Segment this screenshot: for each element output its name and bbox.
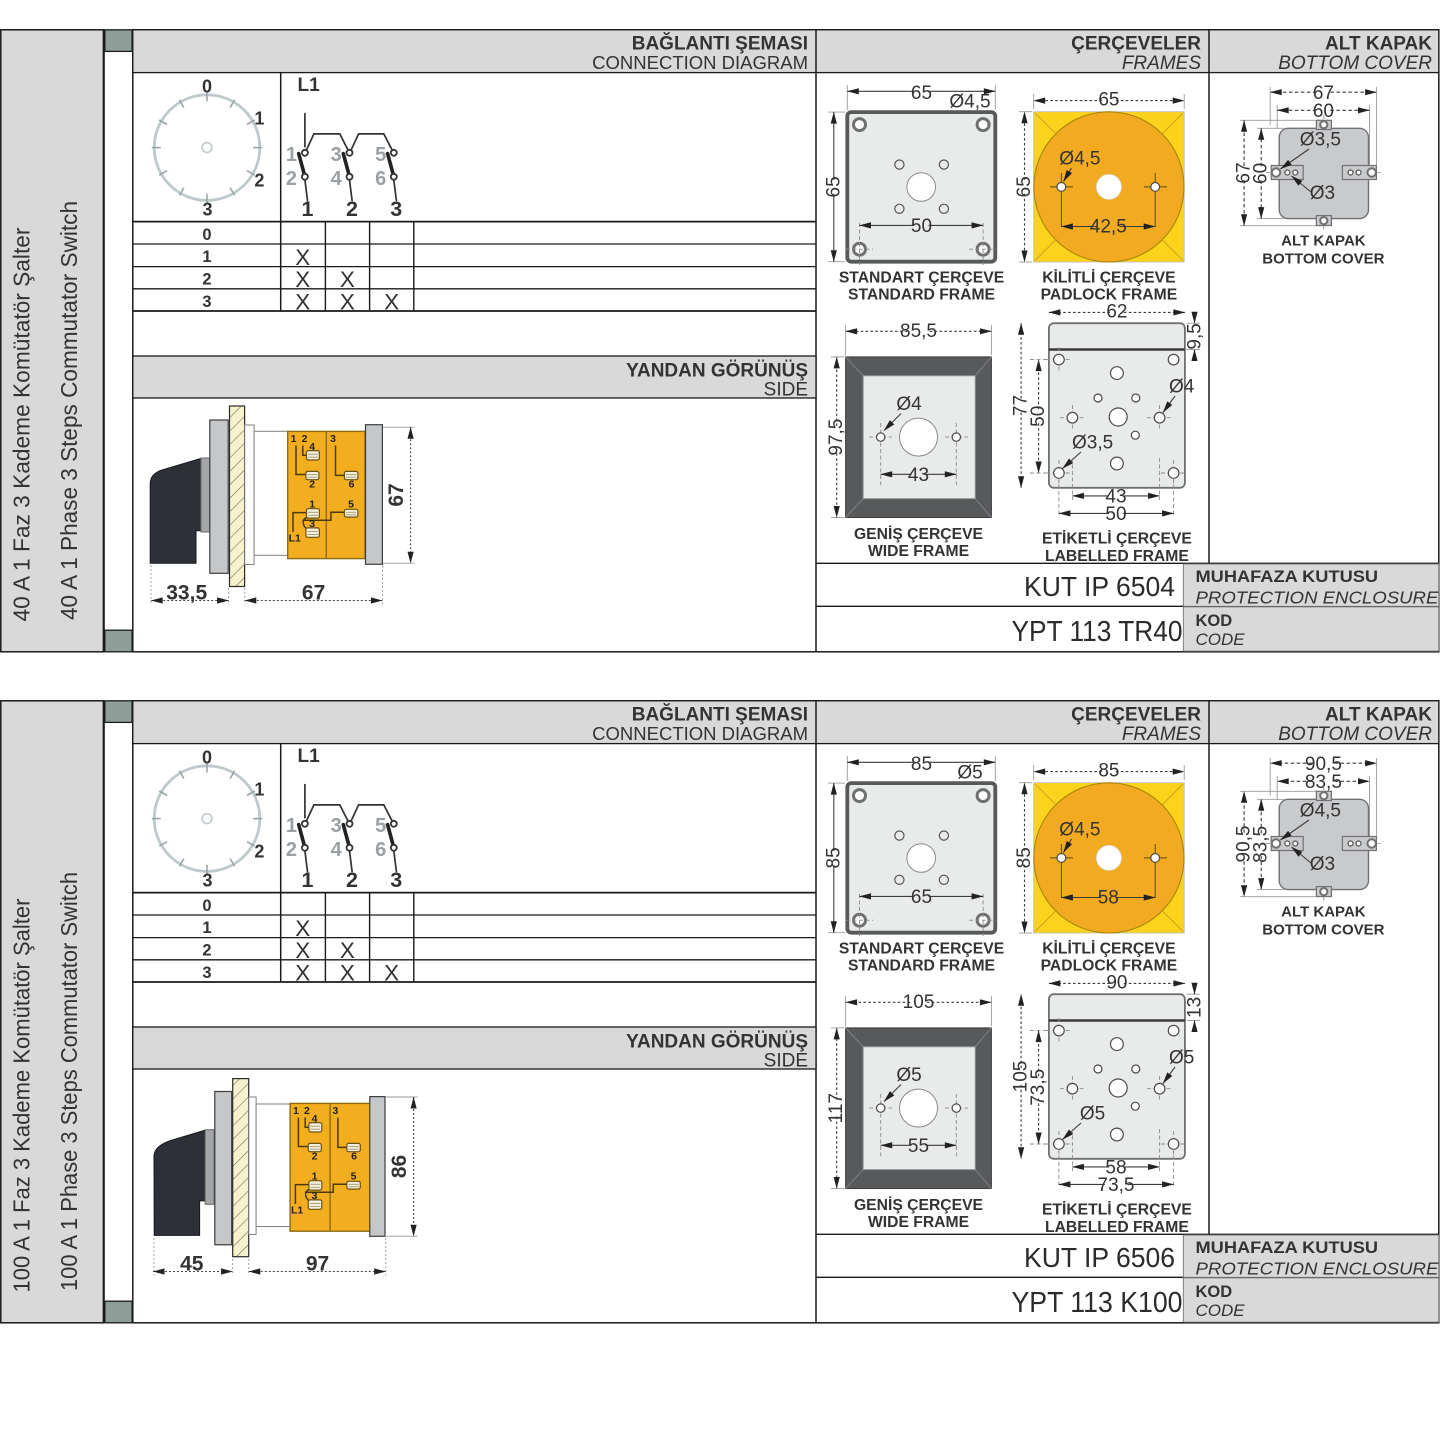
svg-text:1: 1: [312, 1171, 318, 1183]
svg-text:WIDE FRAME: WIDE FRAME: [868, 1214, 969, 1231]
svg-text:40 A 1 Faz 3 Kademe Komütatör: 40 A 1 Faz 3 Kademe Komütatör Şalter: [9, 227, 35, 621]
svg-text:BOTTOM COVER: BOTTOM COVER: [1262, 251, 1384, 268]
svg-text:3: 3: [331, 815, 342, 837]
svg-text:L1: L1: [298, 75, 321, 96]
svg-text:PROTECTION ENCLOSURE: PROTECTION ENCLOSURE: [1196, 588, 1439, 608]
svg-text:5: 5: [348, 499, 354, 511]
svg-text:FRAMES: FRAMES: [1122, 53, 1202, 74]
svg-text:86: 86: [388, 1155, 411, 1178]
svg-text:5: 5: [351, 1171, 357, 1183]
svg-text:2: 2: [346, 868, 358, 892]
svg-text:2: 2: [302, 433, 308, 445]
svg-text:X: X: [295, 245, 310, 270]
svg-text:Ø3,5: Ø3,5: [1072, 433, 1113, 454]
svg-text:Ø3: Ø3: [1310, 854, 1335, 875]
svg-text:97,5: 97,5: [826, 419, 847, 456]
svg-text:85: 85: [1098, 761, 1119, 782]
svg-text:Ø5: Ø5: [1080, 1104, 1105, 1125]
svg-text:1: 1: [286, 144, 297, 166]
svg-text:KUT IP 6506: KUT IP 6506: [1024, 1242, 1175, 1273]
svg-text:3: 3: [390, 197, 402, 221]
svg-text:ETİKETLİ ÇERÇEVE: ETİKETLİ ÇERÇEVE: [1042, 1201, 1192, 1219]
svg-text:YANDAN GÖRÜNÜŞ: YANDAN GÖRÜNÜŞ: [626, 1032, 808, 1053]
svg-text:2: 2: [202, 942, 211, 960]
svg-text:ETİKETLİ ÇERÇEVE: ETİKETLİ ÇERÇEVE: [1042, 530, 1192, 548]
svg-text:3: 3: [312, 1190, 318, 1202]
svg-text:STANDARD FRAME: STANDARD FRAME: [848, 958, 995, 975]
svg-text:3: 3: [330, 433, 336, 445]
svg-text:ALT KAPAK: ALT KAPAK: [1325, 34, 1432, 55]
svg-text:Ø4,5: Ø4,5: [1059, 820, 1100, 841]
svg-text:2: 2: [312, 1150, 318, 1162]
svg-text:85: 85: [911, 754, 932, 775]
svg-text:MUHAFAZA KUTUSU: MUHAFAZA KUTUSU: [1196, 1239, 1379, 1257]
svg-text:L1: L1: [291, 1205, 303, 1217]
svg-text:85,5: 85,5: [900, 321, 937, 342]
svg-text:65: 65: [823, 176, 844, 197]
svg-text:Ø5: Ø5: [1169, 1048, 1194, 1069]
svg-text:Ø4: Ø4: [1169, 377, 1195, 398]
svg-text:1: 1: [302, 868, 314, 892]
svg-text:1: 1: [202, 248, 211, 266]
svg-text:4: 4: [331, 168, 343, 190]
svg-text:2: 2: [202, 271, 211, 289]
svg-text:3: 3: [331, 144, 342, 166]
svg-text:85: 85: [1014, 847, 1035, 868]
svg-text:LABELLED FRAME: LABELLED FRAME: [1045, 1219, 1189, 1236]
svg-text:0: 0: [202, 226, 211, 244]
svg-text:Ø4,5: Ø4,5: [1300, 801, 1341, 822]
svg-text:33,5: 33,5: [166, 581, 207, 604]
svg-text:LABELLED FRAME: LABELLED FRAME: [1045, 548, 1189, 565]
svg-text:3: 3: [202, 964, 211, 982]
svg-text:85: 85: [823, 847, 844, 868]
svg-text:50: 50: [1028, 406, 1049, 427]
svg-text:9,5: 9,5: [1185, 323, 1206, 349]
svg-text:Ø4,5: Ø4,5: [949, 92, 990, 113]
svg-text:13: 13: [1185, 997, 1206, 1018]
svg-text:ALT KAPAK: ALT KAPAK: [1325, 705, 1432, 726]
svg-text:67: 67: [385, 483, 408, 506]
svg-text:L1: L1: [298, 746, 321, 767]
svg-text:KİLİTLİ ÇERÇEVE: KİLİTLİ ÇERÇEVE: [1042, 269, 1175, 287]
svg-text:65: 65: [911, 83, 932, 104]
svg-text:YANDAN GÖRÜNÜŞ: YANDAN GÖRÜNÜŞ: [626, 361, 808, 382]
svg-text:100 A 1 Faz 3 Kademe Komütatör: 100 A 1 Faz 3 Kademe Komütatör Şalter: [9, 898, 35, 1292]
svg-text:ALT KAPAK: ALT KAPAK: [1281, 904, 1366, 921]
svg-text:Ø4: Ø4: [896, 394, 922, 415]
svg-text:STANDARD FRAME: STANDARD FRAME: [848, 287, 995, 304]
svg-text:ÇERÇEVELER: ÇERÇEVELER: [1071, 34, 1201, 55]
svg-text:0: 0: [202, 747, 212, 767]
svg-text:40 A 1 Phase 3 Steps Commutato: 40 A 1 Phase 3 Steps Commutator Switch: [56, 201, 82, 620]
svg-text:5: 5: [375, 144, 386, 166]
svg-text:Ø3: Ø3: [1310, 183, 1335, 204]
svg-text:0: 0: [202, 897, 211, 915]
svg-text:YPT 113 K100: YPT 113 K100: [1012, 1287, 1183, 1319]
svg-text:STANDART ÇERÇEVE: STANDART ÇERÇEVE: [839, 270, 1004, 287]
svg-text:60: 60: [1251, 163, 1272, 184]
svg-text:X: X: [384, 960, 399, 985]
svg-text:2: 2: [286, 839, 297, 861]
svg-text:Ø3,5: Ø3,5: [1300, 130, 1341, 151]
svg-text:KİLİTLİ ÇERÇEVE: KİLİTLİ ÇERÇEVE: [1042, 940, 1175, 958]
svg-text:CODE: CODE: [1196, 630, 1246, 649]
svg-text:2: 2: [346, 197, 358, 221]
svg-text:65: 65: [911, 887, 932, 908]
svg-text:42,5: 42,5: [1090, 217, 1127, 238]
svg-text:55: 55: [908, 1136, 929, 1157]
svg-text:6: 6: [349, 478, 355, 490]
svg-text:Ø4,5: Ø4,5: [1059, 149, 1100, 170]
svg-text:CODE: CODE: [1196, 1301, 1246, 1320]
svg-text:6: 6: [351, 1150, 357, 1162]
svg-text:BOTTOM COVER: BOTTOM COVER: [1262, 922, 1384, 939]
svg-text:3: 3: [332, 1105, 338, 1117]
svg-text:YPT 113 TR40: YPT 113 TR40: [1012, 616, 1183, 648]
svg-text:GENİŞ ÇERÇEVE: GENİŞ ÇERÇEVE: [854, 525, 983, 543]
svg-text:2: 2: [254, 842, 264, 862]
svg-text:X: X: [384, 289, 399, 314]
svg-text:3: 3: [202, 199, 212, 219]
svg-text:45: 45: [180, 1252, 204, 1275]
svg-text:100 A 1 Phase 3 Steps Commutat: 100 A 1 Phase 3 Steps Commutator Switch: [56, 872, 82, 1291]
svg-text:2: 2: [304, 1105, 310, 1117]
svg-text:SIDE: SIDE: [764, 380, 808, 401]
svg-text:CONNECTION DIAGRAM: CONNECTION DIAGRAM: [592, 723, 808, 744]
svg-text:3: 3: [390, 868, 402, 892]
svg-text:ALT KAPAK: ALT KAPAK: [1281, 233, 1366, 250]
svg-text:L1: L1: [289, 533, 301, 545]
svg-text:67: 67: [302, 581, 325, 604]
svg-text:4: 4: [331, 839, 343, 861]
svg-text:1: 1: [202, 919, 211, 937]
svg-text:BOTTOM COVER: BOTTOM COVER: [1278, 724, 1432, 745]
svg-text:2: 2: [286, 168, 297, 190]
svg-text:KUT IP 6504: KUT IP 6504: [1024, 571, 1175, 602]
svg-text:3: 3: [309, 518, 315, 530]
svg-text:FRAMES: FRAMES: [1122, 724, 1202, 745]
svg-text:Ø5: Ø5: [957, 763, 982, 784]
svg-text:X: X: [295, 960, 310, 985]
svg-text:STANDART ÇERÇEVE: STANDART ÇERÇEVE: [839, 941, 1004, 958]
svg-text:90: 90: [1106, 973, 1127, 994]
svg-text:4: 4: [309, 441, 315, 453]
svg-text:KOD: KOD: [1196, 1283, 1233, 1301]
svg-text:50: 50: [911, 216, 932, 237]
svg-text:117: 117: [826, 1093, 847, 1123]
svg-text:1: 1: [309, 499, 315, 511]
svg-text:GENİŞ ÇERÇEVE: GENİŞ ÇERÇEVE: [854, 1196, 983, 1214]
svg-text:KOD: KOD: [1196, 612, 1233, 630]
svg-text:3: 3: [202, 870, 212, 890]
svg-text:4: 4: [312, 1113, 318, 1125]
svg-text:58: 58: [1098, 888, 1119, 909]
svg-text:0: 0: [202, 76, 212, 96]
svg-text:BOTTOM COVER: BOTTOM COVER: [1278, 53, 1432, 74]
svg-text:1: 1: [254, 779, 264, 799]
svg-text:CONNECTION DIAGRAM: CONNECTION DIAGRAM: [592, 52, 808, 73]
svg-text:105: 105: [903, 992, 935, 1013]
svg-text:PROTECTION ENCLOSURE: PROTECTION ENCLOSURE: [1196, 1259, 1439, 1279]
svg-text:3: 3: [202, 293, 211, 311]
svg-text:65: 65: [1098, 90, 1119, 111]
svg-text:50: 50: [1105, 504, 1126, 525]
svg-text:6: 6: [375, 168, 386, 190]
svg-text:62: 62: [1106, 302, 1127, 323]
svg-text:X: X: [340, 960, 355, 985]
svg-text:97: 97: [306, 1252, 329, 1275]
svg-text:WIDE FRAME: WIDE FRAME: [868, 543, 969, 560]
svg-text:Ø5: Ø5: [896, 1065, 921, 1086]
svg-text:83,5: 83,5: [1251, 826, 1272, 863]
svg-text:X: X: [295, 289, 310, 314]
svg-text:2: 2: [254, 171, 264, 191]
svg-text:6: 6: [375, 839, 386, 861]
svg-text:1: 1: [293, 1105, 299, 1117]
svg-text:73,5: 73,5: [1028, 1069, 1049, 1106]
svg-text:1: 1: [291, 433, 297, 445]
svg-text:1: 1: [254, 108, 264, 128]
svg-text:1: 1: [286, 815, 297, 837]
svg-text:MUHAFAZA KUTUSU: MUHAFAZA KUTUSU: [1196, 568, 1379, 586]
svg-text:X: X: [295, 916, 310, 941]
svg-text:ÇERÇEVELER: ÇERÇEVELER: [1071, 705, 1201, 726]
svg-text:73,5: 73,5: [1098, 1175, 1135, 1196]
svg-text:SIDE: SIDE: [764, 1051, 808, 1072]
svg-text:65: 65: [1014, 176, 1035, 197]
svg-text:1: 1: [302, 197, 314, 221]
svg-text:X: X: [340, 289, 355, 314]
svg-text:2: 2: [309, 478, 315, 490]
svg-text:43: 43: [908, 465, 929, 486]
svg-text:5: 5: [375, 815, 386, 837]
